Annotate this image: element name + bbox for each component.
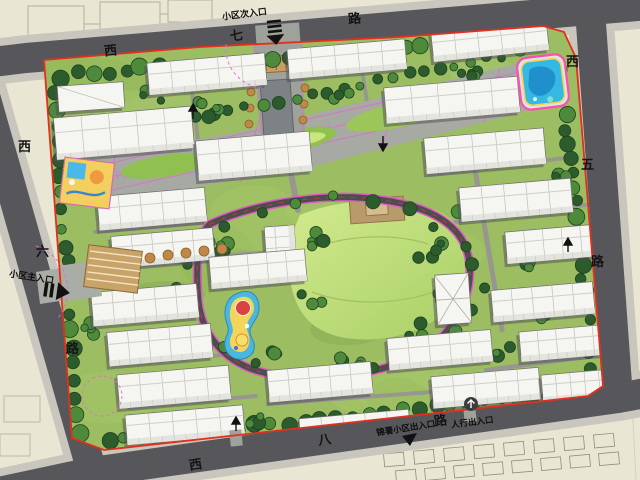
tree bbox=[268, 347, 281, 360]
tree bbox=[334, 90, 344, 100]
tree bbox=[559, 106, 575, 122]
road-label-char: 路 bbox=[347, 11, 361, 25]
tree bbox=[157, 97, 164, 104]
tree bbox=[290, 198, 301, 209]
tree bbox=[334, 352, 346, 364]
tree bbox=[559, 125, 571, 137]
residential-building bbox=[54, 82, 125, 116]
road-label-char: 西 bbox=[103, 43, 117, 57]
tree bbox=[480, 283, 490, 293]
road-label-char: 路 bbox=[591, 255, 604, 268]
tree bbox=[560, 136, 576, 152]
tree bbox=[308, 89, 318, 99]
tree bbox=[504, 342, 515, 353]
tree bbox=[246, 420, 254, 428]
tree bbox=[403, 202, 417, 216]
tree bbox=[414, 317, 427, 330]
tree bbox=[102, 433, 118, 449]
tree bbox=[412, 38, 428, 54]
road-label-char: 八 bbox=[317, 432, 332, 447]
pedestrian-entrance-icon bbox=[464, 397, 478, 411]
tree bbox=[64, 309, 75, 320]
tree bbox=[388, 73, 398, 83]
tree bbox=[373, 74, 383, 84]
tree bbox=[251, 358, 260, 367]
road-label-char: 七 bbox=[229, 28, 243, 42]
tree bbox=[431, 245, 442, 256]
tree bbox=[258, 99, 270, 111]
tree bbox=[55, 203, 67, 215]
tree bbox=[257, 208, 267, 218]
tree bbox=[457, 69, 465, 77]
tree bbox=[52, 70, 69, 87]
tree bbox=[461, 241, 471, 251]
tree bbox=[81, 324, 89, 332]
tree bbox=[202, 110, 215, 123]
tree bbox=[429, 222, 438, 231]
clubhouse-building bbox=[431, 273, 472, 328]
road-label-char: 西 bbox=[566, 55, 579, 68]
tree bbox=[493, 349, 500, 356]
tree bbox=[213, 104, 221, 112]
tree bbox=[240, 102, 249, 111]
tree bbox=[197, 98, 207, 108]
tree bbox=[572, 195, 583, 206]
tree bbox=[103, 67, 116, 80]
tree bbox=[57, 224, 67, 234]
master-plan-screenshot: 西 七 路 西 六 路 西 五 路 西 八 路 小区次入口 小区主入口 锦著小区… bbox=[0, 0, 640, 480]
tree bbox=[293, 95, 303, 105]
road-label-char: 五 bbox=[581, 158, 594, 171]
tree bbox=[219, 221, 230, 232]
tree bbox=[86, 66, 102, 82]
tree bbox=[307, 298, 319, 310]
tree bbox=[564, 151, 578, 165]
west-playground bbox=[59, 157, 114, 209]
tree bbox=[328, 191, 337, 200]
tree bbox=[419, 66, 430, 77]
tree bbox=[72, 65, 86, 79]
tree bbox=[297, 290, 306, 299]
tree bbox=[317, 234, 330, 247]
tree bbox=[58, 241, 72, 255]
tree bbox=[66, 356, 79, 369]
ne-pool bbox=[516, 53, 570, 110]
tree bbox=[450, 63, 458, 71]
road-label-char: 西 bbox=[188, 457, 203, 472]
south-ped-connector bbox=[229, 429, 243, 446]
tree bbox=[356, 82, 364, 90]
tree bbox=[465, 258, 478, 271]
road-label-char: 六 bbox=[36, 245, 49, 258]
tree bbox=[366, 195, 380, 209]
tree bbox=[272, 96, 285, 109]
tree bbox=[68, 374, 81, 387]
tree bbox=[344, 88, 354, 98]
master-plan-map bbox=[0, 0, 640, 480]
road-label-char: 西 bbox=[18, 140, 31, 153]
tree bbox=[140, 91, 147, 98]
tree bbox=[265, 51, 281, 67]
tree bbox=[257, 413, 264, 420]
road-label-char: 路 bbox=[66, 342, 79, 355]
tree bbox=[413, 252, 425, 264]
